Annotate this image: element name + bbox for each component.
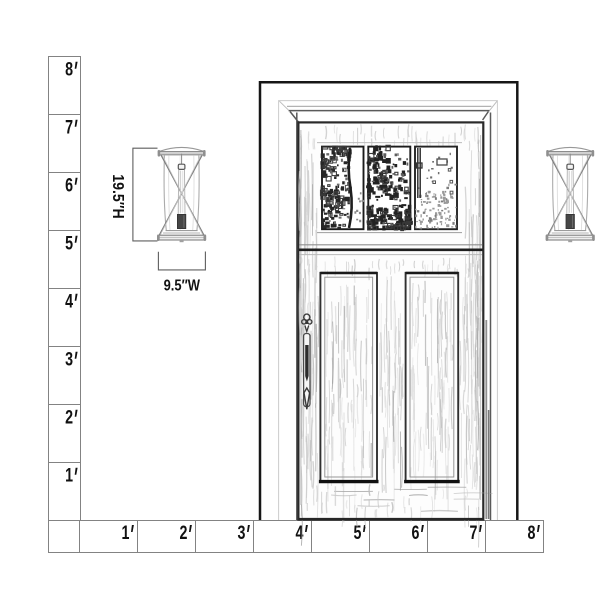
svg-text:3: 3 [237, 522, 245, 543]
svg-text:2: 2 [65, 407, 73, 428]
svg-text:7: 7 [469, 522, 477, 543]
svg-text:1: 1 [65, 465, 73, 486]
svg-text:3: 3 [65, 349, 73, 370]
svg-text:6: 6 [65, 175, 73, 196]
svg-text:1: 1 [121, 522, 129, 543]
svg-text:8: 8 [527, 522, 535, 543]
svg-text:8: 8 [65, 59, 73, 80]
svg-text:7: 7 [65, 117, 73, 138]
svg-text:19.5″H: 19.5″H [109, 174, 126, 219]
svg-text:2: 2 [179, 522, 187, 543]
svg-text:9.5″W: 9.5″W [164, 278, 201, 295]
svg-text:6: 6 [411, 522, 419, 543]
svg-text:5: 5 [65, 233, 73, 254]
svg-text:4: 4 [65, 291, 73, 312]
